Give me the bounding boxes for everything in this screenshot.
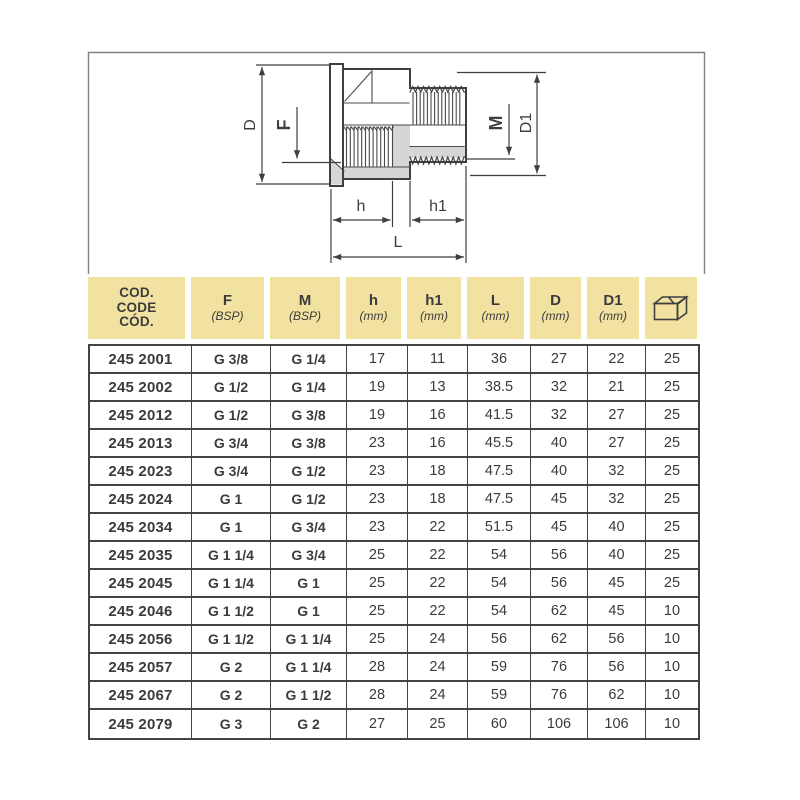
table-row: 245 2046 G 1 1/2 G 1 25 22 54 62 45 10 (90, 598, 698, 626)
cell-pack: 25 (645, 374, 698, 400)
cell-h1: 22 (407, 514, 467, 540)
technical-drawing: D F M D1 h h1 L (0, 0, 800, 285)
cell-F: G 1 1/2 (191, 598, 270, 624)
cell-pack: 25 (645, 542, 698, 568)
header-cell-code: COD. CODE CÓD. (88, 277, 191, 339)
cell-L: 38.5 (467, 374, 530, 400)
cell-code: 245 2035 (90, 542, 191, 568)
cell-code: 245 2012 (90, 402, 191, 428)
cell-h1: 24 (407, 626, 467, 652)
cell-pack: 25 (645, 430, 698, 456)
cell-M: G 1 1/4 (270, 626, 346, 652)
cell-pack: 10 (645, 654, 698, 680)
header-M-unit: (BSP) (289, 310, 321, 323)
header-cell-M: M (BSP) (270, 277, 346, 339)
cell-h1: 13 (407, 374, 467, 400)
fitting-section-view (330, 64, 466, 186)
cell-F: G 1/2 (191, 402, 270, 428)
header-h1-label: h1 (425, 293, 443, 309)
table-header: COD. CODE CÓD. F (BSP) M (BSP) h (mm) h1… (88, 277, 700, 339)
dim-label-L: L (394, 234, 403, 251)
cell-D1: 62 (587, 682, 645, 708)
cell-F: G 1 1/4 (191, 542, 270, 568)
table-row: 245 2012 G 1/2 G 3/8 19 16 41.5 32 27 25 (90, 402, 698, 430)
cell-D1: 22 (587, 346, 645, 372)
header-code-line3: CÓD. (119, 315, 154, 330)
cell-h1: 22 (407, 570, 467, 596)
cell-L: 60 (467, 710, 530, 738)
header-code-line2: CODE (117, 301, 157, 316)
header-L-label: L (491, 293, 500, 309)
header-h-unit: (mm) (360, 310, 388, 323)
table-row: 245 2056 G 1 1/2 G 1 1/4 25 24 56 62 56 … (90, 626, 698, 654)
cell-F: G 1 1/4 (191, 570, 270, 596)
cell-h: 17 (346, 346, 407, 372)
box-icon (651, 294, 691, 323)
header-F-label: F (223, 293, 232, 309)
header-code-line1: COD. (119, 286, 154, 301)
table-row: 245 2057 G 2 G 1 1/4 28 24 59 76 56 10 (90, 654, 698, 682)
cell-L: 54 (467, 542, 530, 568)
header-D1-label: D1 (603, 293, 622, 309)
header-D1-unit: (mm) (599, 310, 627, 323)
cell-D1: 40 (587, 542, 645, 568)
header-cell-D: D (mm) (530, 277, 587, 339)
cell-D1: 56 (587, 654, 645, 680)
cell-M: G 1/4 (270, 346, 346, 372)
table-row: 245 2023 G 3/4 G 1/2 23 18 47.5 40 32 25 (90, 458, 698, 486)
table-row: 245 2013 G 3/4 G 3/8 23 16 45.5 40 27 25 (90, 430, 698, 458)
cell-h: 23 (346, 486, 407, 512)
cell-M: G 1/4 (270, 374, 346, 400)
dim-label-D: D (242, 119, 259, 131)
cell-code: 245 2034 (90, 514, 191, 540)
cell-h: 28 (346, 654, 407, 680)
cell-F: G 3 (191, 710, 270, 738)
cell-D: 106 (530, 710, 587, 738)
cell-h1: 11 (407, 346, 467, 372)
cell-D: 56 (530, 570, 587, 596)
header-cell-D1: D1 (mm) (587, 277, 645, 339)
catalog-page: D F M D1 h h1 L COD. CODE CÓD. F (BSP) M… (0, 0, 800, 800)
spec-table-body: 245 2001 G 3/8 G 1/4 17 11 36 27 22 25 2… (88, 344, 700, 740)
cell-pack: 25 (645, 514, 698, 540)
cell-pack: 10 (645, 710, 698, 738)
cell-h1: 16 (407, 402, 467, 428)
cell-M: G 3/4 (270, 514, 346, 540)
cell-D: 62 (530, 598, 587, 624)
cell-D1: 27 (587, 402, 645, 428)
cell-h: 25 (346, 570, 407, 596)
cell-M: G 3/8 (270, 402, 346, 428)
cell-M: G 2 (270, 710, 346, 738)
cell-code: 245 2024 (90, 486, 191, 512)
cell-code: 245 2013 (90, 430, 191, 456)
cell-M: G 1 (270, 598, 346, 624)
cell-pack: 25 (645, 458, 698, 484)
cell-h: 27 (346, 710, 407, 738)
dim-label-h1: h1 (429, 198, 447, 215)
header-cell-h1: h1 (mm) (407, 277, 467, 339)
cell-h: 19 (346, 374, 407, 400)
cell-pack: 25 (645, 402, 698, 428)
cell-h1: 18 (407, 486, 467, 512)
cell-h: 25 (346, 598, 407, 624)
header-cell-package (645, 277, 700, 339)
cell-F: G 1 (191, 486, 270, 512)
cell-pack: 10 (645, 682, 698, 708)
cell-L: 36 (467, 346, 530, 372)
cell-D: 56 (530, 542, 587, 568)
cell-D: 76 (530, 654, 587, 680)
cell-h: 25 (346, 542, 407, 568)
cell-D: 40 (530, 458, 587, 484)
cell-code: 245 2079 (90, 710, 191, 738)
cell-D: 62 (530, 626, 587, 652)
cell-M: G 1/2 (270, 458, 346, 484)
cell-L: 45.5 (467, 430, 530, 456)
cell-code: 245 2002 (90, 374, 191, 400)
cell-D: 45 (530, 486, 587, 512)
cell-D: 40 (530, 430, 587, 456)
table-row: 245 2079 G 3 G 2 27 25 60 106 106 10 (90, 710, 698, 738)
cell-L: 47.5 (467, 458, 530, 484)
cell-F: G 3/4 (191, 458, 270, 484)
cell-h1: 25 (407, 710, 467, 738)
cell-D: 45 (530, 514, 587, 540)
header-L-unit: (mm) (482, 310, 510, 323)
cell-h: 23 (346, 458, 407, 484)
table-row: 245 2001 G 3/8 G 1/4 17 11 36 27 22 25 (90, 346, 698, 374)
cell-D1: 106 (587, 710, 645, 738)
cell-L: 54 (467, 598, 530, 624)
cell-D1: 27 (587, 430, 645, 456)
cell-code: 245 2057 (90, 654, 191, 680)
cell-code: 245 2067 (90, 682, 191, 708)
cell-M: G 1 1/2 (270, 682, 346, 708)
cell-h: 28 (346, 682, 407, 708)
cell-h: 23 (346, 514, 407, 540)
cell-M: G 1 1/4 (270, 654, 346, 680)
cell-D1: 32 (587, 458, 645, 484)
cell-pack: 10 (645, 626, 698, 652)
cell-code: 245 2001 (90, 346, 191, 372)
dim-label-M: M (486, 116, 506, 131)
cell-h1: 18 (407, 458, 467, 484)
cell-L: 59 (467, 654, 530, 680)
cell-h1: 22 (407, 598, 467, 624)
cell-F: G 1 (191, 514, 270, 540)
cell-D: 27 (530, 346, 587, 372)
dim-label-h: h (357, 198, 366, 215)
cell-D: 76 (530, 682, 587, 708)
cell-F: G 3/4 (191, 430, 270, 456)
cell-h1: 24 (407, 654, 467, 680)
cell-D: 32 (530, 374, 587, 400)
cell-D1: 45 (587, 570, 645, 596)
table-row: 245 2034 G 1 G 3/4 23 22 51.5 45 40 25 (90, 514, 698, 542)
header-M-label: M (299, 293, 312, 309)
cell-code: 245 2046 (90, 598, 191, 624)
cell-pack: 10 (645, 598, 698, 624)
cell-F: G 1/2 (191, 374, 270, 400)
header-D-label: D (550, 293, 561, 309)
cell-h1: 22 (407, 542, 467, 568)
cell-F: G 2 (191, 654, 270, 680)
header-h1-unit: (mm) (420, 310, 448, 323)
cell-F: G 3/8 (191, 346, 270, 372)
cell-D1: 21 (587, 374, 645, 400)
cell-L: 54 (467, 570, 530, 596)
cell-code: 245 2056 (90, 626, 191, 652)
header-h-label: h (369, 293, 378, 309)
cell-M: G 1/2 (270, 486, 346, 512)
cell-h: 25 (346, 626, 407, 652)
cell-L: 47.5 (467, 486, 530, 512)
cell-D: 32 (530, 402, 587, 428)
cell-M: G 3/4 (270, 542, 346, 568)
table-row: 245 2035 G 1 1/4 G 3/4 25 22 54 56 40 25 (90, 542, 698, 570)
cell-L: 51.5 (467, 514, 530, 540)
cell-pack: 25 (645, 346, 698, 372)
header-cell-h: h (mm) (346, 277, 407, 339)
cell-pack: 25 (645, 570, 698, 596)
cell-L: 56 (467, 626, 530, 652)
cell-F: G 2 (191, 682, 270, 708)
cell-L: 59 (467, 682, 530, 708)
cell-D1: 32 (587, 486, 645, 512)
cell-h1: 16 (407, 430, 467, 456)
cell-h1: 24 (407, 682, 467, 708)
cell-M: G 3/8 (270, 430, 346, 456)
header-D-unit: (mm) (542, 310, 570, 323)
cell-pack: 25 (645, 486, 698, 512)
dim-label-F: F (274, 120, 294, 131)
table-row: 245 2002 G 1/2 G 1/4 19 13 38.5 32 21 25 (90, 374, 698, 402)
cell-code: 245 2045 (90, 570, 191, 596)
cell-M: G 1 (270, 570, 346, 596)
table-row: 245 2045 G 1 1/4 G 1 25 22 54 56 45 25 (90, 570, 698, 598)
cell-h: 23 (346, 430, 407, 456)
cell-D1: 45 (587, 598, 645, 624)
dim-label-D1: D1 (518, 113, 535, 134)
header-F-unit: (BSP) (211, 310, 243, 323)
cell-F: G 1 1/2 (191, 626, 270, 652)
table-row: 245 2024 G 1 G 1/2 23 18 47.5 45 32 25 (90, 486, 698, 514)
cell-D1: 56 (587, 626, 645, 652)
table-row: 245 2067 G 2 G 1 1/2 28 24 59 76 62 10 (90, 682, 698, 710)
cell-code: 245 2023 (90, 458, 191, 484)
cell-h: 19 (346, 402, 407, 428)
header-cell-F: F (BSP) (191, 277, 270, 339)
cell-D1: 40 (587, 514, 645, 540)
cell-L: 41.5 (467, 402, 530, 428)
header-cell-L: L (mm) (467, 277, 530, 339)
